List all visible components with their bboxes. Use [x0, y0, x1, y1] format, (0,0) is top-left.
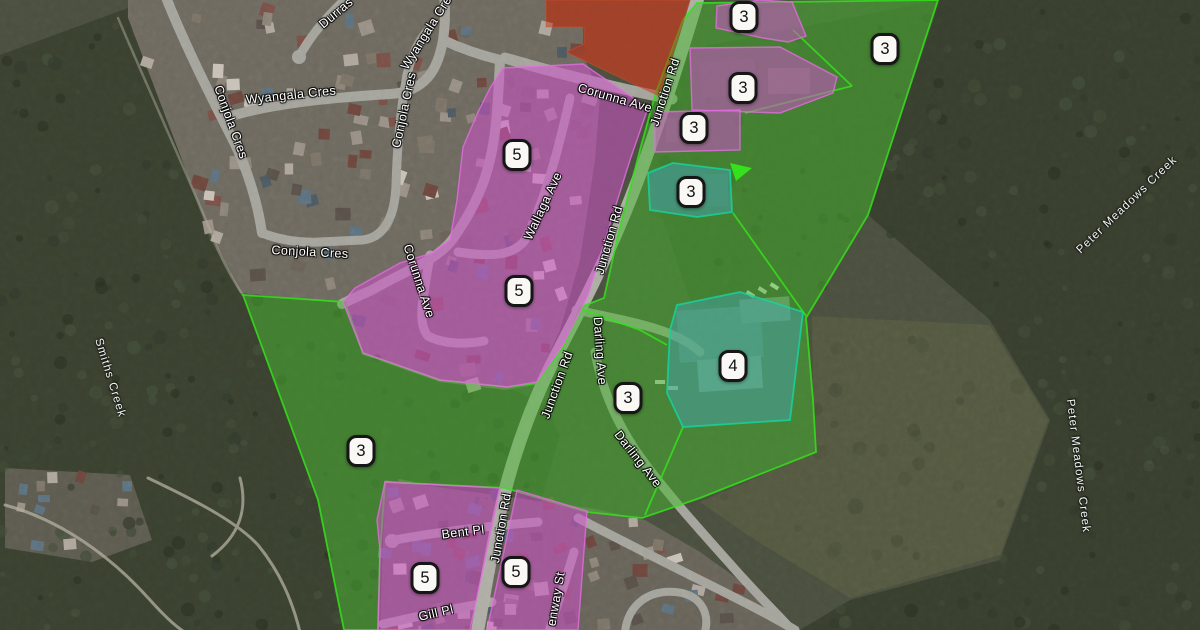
zone-number-marker[interactable]: 5: [505, 275, 534, 307]
zone-number-marker[interactable]: 3: [871, 33, 900, 65]
zone-number-marker[interactable]: 3: [729, 72, 758, 104]
zone-number-marker[interactable]: 4: [719, 350, 748, 382]
zone-number-marker[interactable]: 5: [502, 556, 531, 588]
map-canvas[interactable]: DurrasWyangala CresWyangala CresConjola …: [0, 0, 1200, 630]
zone-number-marker[interactable]: 3: [614, 382, 643, 414]
zone-number-marker[interactable]: 3: [680, 112, 709, 144]
satellite-base-map[interactable]: [0, 0, 1200, 630]
zone-number-marker[interactable]: 3: [730, 1, 759, 33]
zone-number-marker[interactable]: 5: [411, 562, 440, 594]
zone-number-marker[interactable]: 3: [347, 435, 376, 467]
zone-number-marker[interactable]: 5: [503, 139, 532, 171]
zone-number-marker[interactable]: 3: [677, 176, 706, 208]
